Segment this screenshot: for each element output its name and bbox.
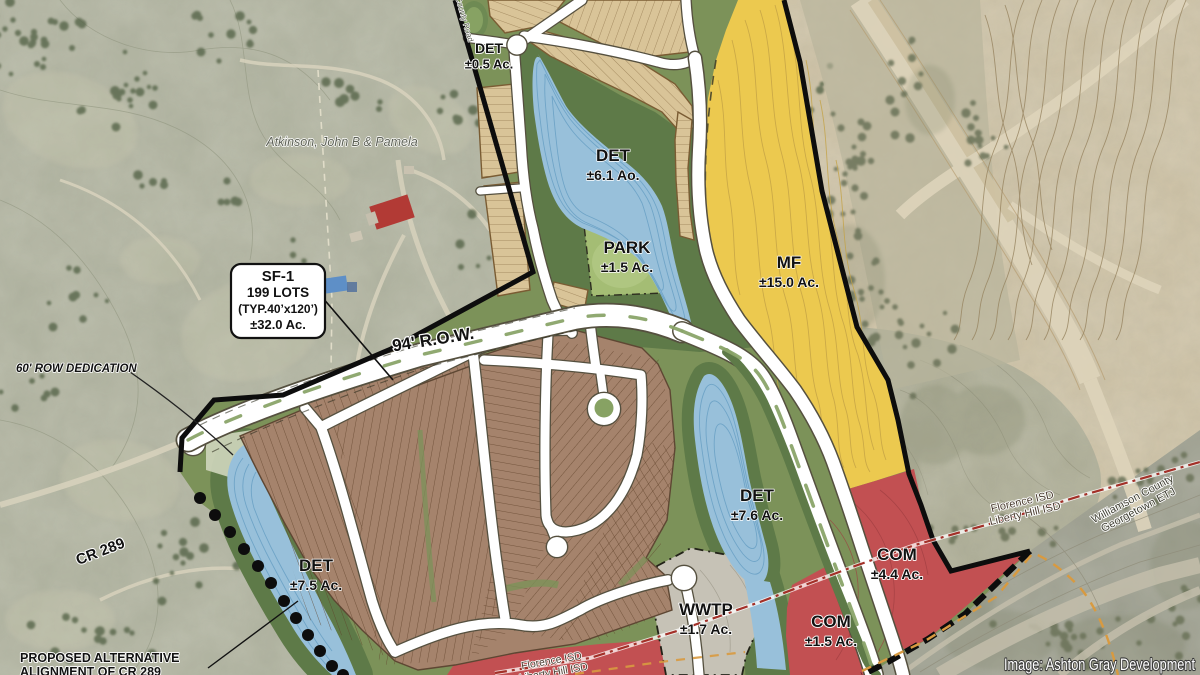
svg-text:COM: COM [811, 612, 851, 631]
svg-text:±1.5 Ac.: ±1.5 Ac. [601, 259, 653, 275]
svg-text:±32.0 Ac.: ±32.0 Ac. [250, 317, 306, 332]
svg-text:Image: Ashton Gray Development: Image: Ashton Gray Development [1004, 655, 1195, 674]
svg-text:±7.5 Ac.: ±7.5 Ac. [290, 577, 342, 593]
svg-text:±7.6 Ac.: ±7.6 Ac. [731, 507, 783, 523]
svg-text:±6.1 Ao.: ±6.1 Ao. [586, 167, 639, 183]
svg-text:±0.5 Ac.: ±0.5 Ac. [465, 57, 514, 72]
svg-text:WWTP: WWTP [679, 600, 733, 619]
svg-text:±4.4 Ac.: ±4.4 Ac. [871, 566, 923, 582]
svg-text:60' ROW DEDICATION: 60' ROW DEDICATION [16, 363, 137, 375]
svg-text:±1.5 Ac.: ±1.5 Ac. [805, 633, 857, 649]
svg-text:MF: MF [777, 253, 802, 272]
svg-text:199 LOTS: 199 LOTS [247, 285, 309, 300]
svg-text:ALIGNMENT OF CR 289: ALIGNMENT OF CR 289 [20, 665, 161, 675]
svg-text:DET: DET [475, 40, 503, 56]
svg-text:±15.0 Ac.: ±15.0 Ac. [759, 274, 819, 290]
svg-text:(TYP.40’x120’): (TYP.40’x120’) [238, 302, 318, 316]
svg-text:SF-1: SF-1 [262, 268, 295, 285]
svg-text:COM: COM [877, 545, 917, 564]
svg-text:PARK: PARK [604, 238, 652, 257]
svg-text:DET: DET [740, 486, 775, 505]
svg-text:DET: DET [299, 556, 334, 575]
svg-text:±1.7 Ac.: ±1.7 Ac. [680, 621, 732, 637]
svg-text:Atkinson, John B & Pamela: Atkinson, John B & Pamela [265, 135, 418, 149]
svg-text:PROPOSED ALTERNATIVE: PROPOSED ALTERNATIVE [20, 651, 180, 665]
svg-text:DET: DET [596, 146, 631, 165]
